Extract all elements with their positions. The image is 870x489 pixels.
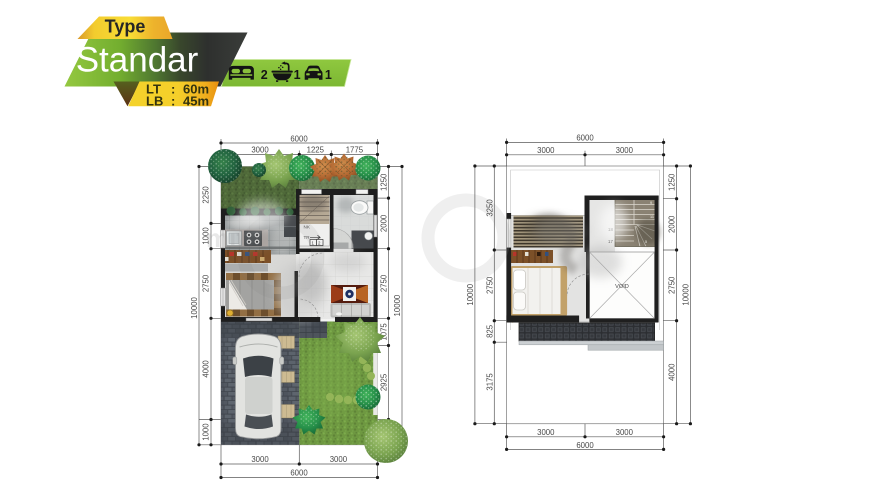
svg-text:825: 825	[485, 324, 494, 338]
svg-text:2750: 2750	[380, 274, 389, 292]
svg-text:2250: 2250	[202, 186, 211, 204]
svg-text:11: 11	[650, 215, 654, 219]
svg-text:3000: 3000	[330, 455, 348, 464]
svg-text:4000: 4000	[668, 363, 677, 381]
svg-text:4000: 4000	[202, 360, 211, 378]
svg-text:6000: 6000	[290, 134, 308, 143]
svg-text:3000: 3000	[616, 146, 634, 155]
svg-text:3000: 3000	[616, 428, 634, 437]
svg-text:45m: 45m	[183, 94, 209, 109]
svg-text:mit: mit	[206, 223, 245, 253]
svg-text:2000: 2000	[668, 215, 677, 233]
svg-text:10000: 10000	[466, 283, 475, 305]
svg-text::: :	[171, 94, 175, 109]
svg-text:2750: 2750	[485, 276, 494, 294]
svg-text:2750: 2750	[202, 274, 211, 292]
svg-text:3175: 3175	[485, 373, 494, 391]
svg-text:3000: 3000	[251, 146, 269, 155]
svg-text:LB: LB	[146, 94, 163, 109]
svg-text:VOID: VOID	[615, 284, 629, 290]
svg-text:3000: 3000	[537, 428, 555, 437]
svg-text:1000: 1000	[202, 423, 211, 441]
svg-text:2750: 2750	[668, 276, 677, 294]
svg-text:2: 2	[261, 68, 268, 82]
svg-text:1250: 1250	[380, 173, 389, 191]
svg-text:1250: 1250	[668, 173, 677, 191]
svg-text:6000: 6000	[290, 469, 308, 478]
svg-text:10000: 10000	[190, 296, 199, 318]
svg-text:10000: 10000	[393, 294, 402, 316]
svg-text:Type: Type	[105, 17, 146, 37]
svg-text:2000: 2000	[380, 214, 389, 232]
svg-text:2925: 2925	[380, 373, 389, 391]
svg-text:10000: 10000	[681, 283, 690, 305]
svg-text:3250: 3250	[485, 199, 494, 217]
svg-text:1: 1	[325, 68, 332, 82]
svg-text:1: 1	[294, 68, 301, 82]
svg-text:1225: 1225	[307, 146, 325, 155]
svg-text:9: 9	[650, 201, 652, 205]
svg-text:Standar: Standar	[76, 41, 199, 80]
svg-text:3000: 3000	[251, 455, 269, 464]
svg-text:1775: 1775	[346, 146, 364, 155]
svg-text:6000: 6000	[576, 441, 594, 450]
svg-text:6000: 6000	[576, 134, 594, 143]
svg-text:3000: 3000	[537, 146, 555, 155]
svg-text:5: 5	[645, 240, 647, 244]
